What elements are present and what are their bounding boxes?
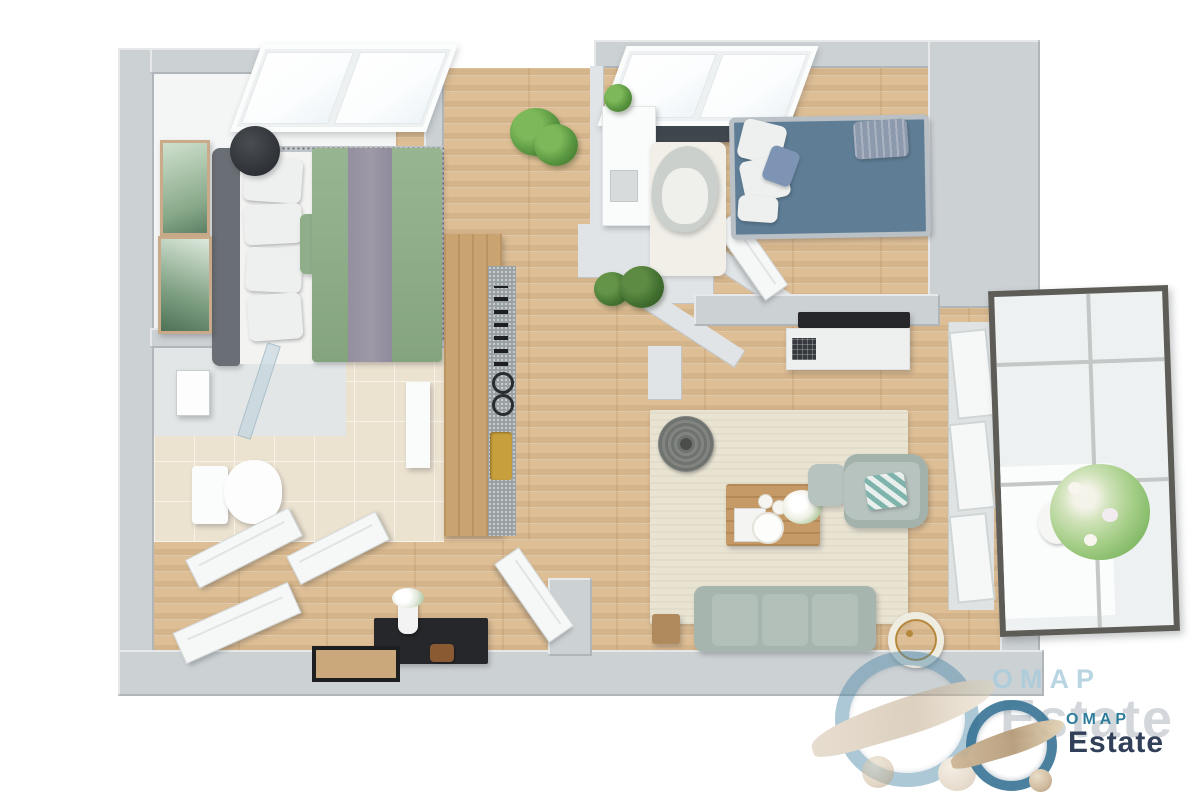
cooktop-burner — [492, 372, 514, 394]
balcony-window-wall — [948, 322, 994, 610]
brand-logo-small — [960, 698, 1056, 794]
tv — [798, 312, 910, 328]
logo-ball — [1029, 769, 1052, 792]
small-plant — [604, 84, 632, 112]
shower-mixer — [176, 370, 210, 416]
ottoman — [808, 464, 846, 506]
vase-flowers — [392, 588, 424, 608]
bed-runner-gray — [348, 148, 392, 362]
toilet-tank — [192, 466, 228, 524]
balcony-flower-planter — [1050, 464, 1150, 560]
white-bloom — [1102, 508, 1118, 522]
bed-headboard — [212, 148, 240, 366]
floor-plan-render: OMAP Estate OMAP Estate — [0, 0, 1200, 799]
logo-ball-accent — [862, 756, 894, 788]
speaker-grille — [792, 338, 816, 360]
bed-pillow — [245, 247, 303, 294]
daybed-gray-cushion — [853, 118, 910, 160]
black-chair — [230, 126, 280, 176]
balcony-rail — [997, 357, 1165, 367]
gold-sink — [490, 432, 512, 480]
cooktop-knobs — [494, 286, 508, 366]
bedroom-skylight-windows — [230, 44, 458, 132]
wall-left — [118, 48, 154, 694]
cooktop-burner — [492, 394, 514, 416]
round-plate — [752, 512, 784, 544]
wall-right-top — [928, 40, 1040, 308]
white-bloom — [1068, 482, 1082, 494]
balcony — [988, 285, 1180, 637]
wall-art-frame — [160, 140, 210, 236]
sofa-cushion — [812, 594, 858, 646]
sofa-cushion — [762, 594, 808, 646]
side-table — [652, 614, 680, 644]
white-bloom — [1084, 534, 1097, 546]
window-pane — [949, 512, 996, 603]
potted-plant — [534, 124, 578, 166]
chevron-pillow — [864, 471, 908, 510]
round-rug-center — [680, 438, 692, 450]
sofa-cushion — [712, 594, 758, 646]
white-dresser — [602, 106, 656, 226]
dresser-basin — [610, 170, 638, 202]
bed-pillow — [243, 203, 303, 246]
window-pane — [334, 52, 447, 124]
floor-lamp-hub — [906, 630, 913, 637]
floor-plant — [620, 266, 664, 308]
bed-pillow — [246, 292, 303, 342]
daybed-pillow — [737, 195, 779, 224]
wall-stub — [648, 346, 682, 400]
window-pane — [949, 420, 996, 511]
egg-armchair-cushion — [662, 168, 708, 224]
wall-art-frame — [158, 236, 212, 334]
bathroom-shelf — [406, 382, 430, 468]
brand-name-small-bottom: Estate — [1068, 728, 1164, 758]
small-plate — [758, 494, 773, 509]
brand-logo-large — [826, 648, 982, 794]
leaning-picture-frame — [312, 646, 400, 682]
leather-bag — [430, 644, 454, 662]
window-pane — [699, 54, 807, 118]
window-pane — [949, 328, 996, 419]
